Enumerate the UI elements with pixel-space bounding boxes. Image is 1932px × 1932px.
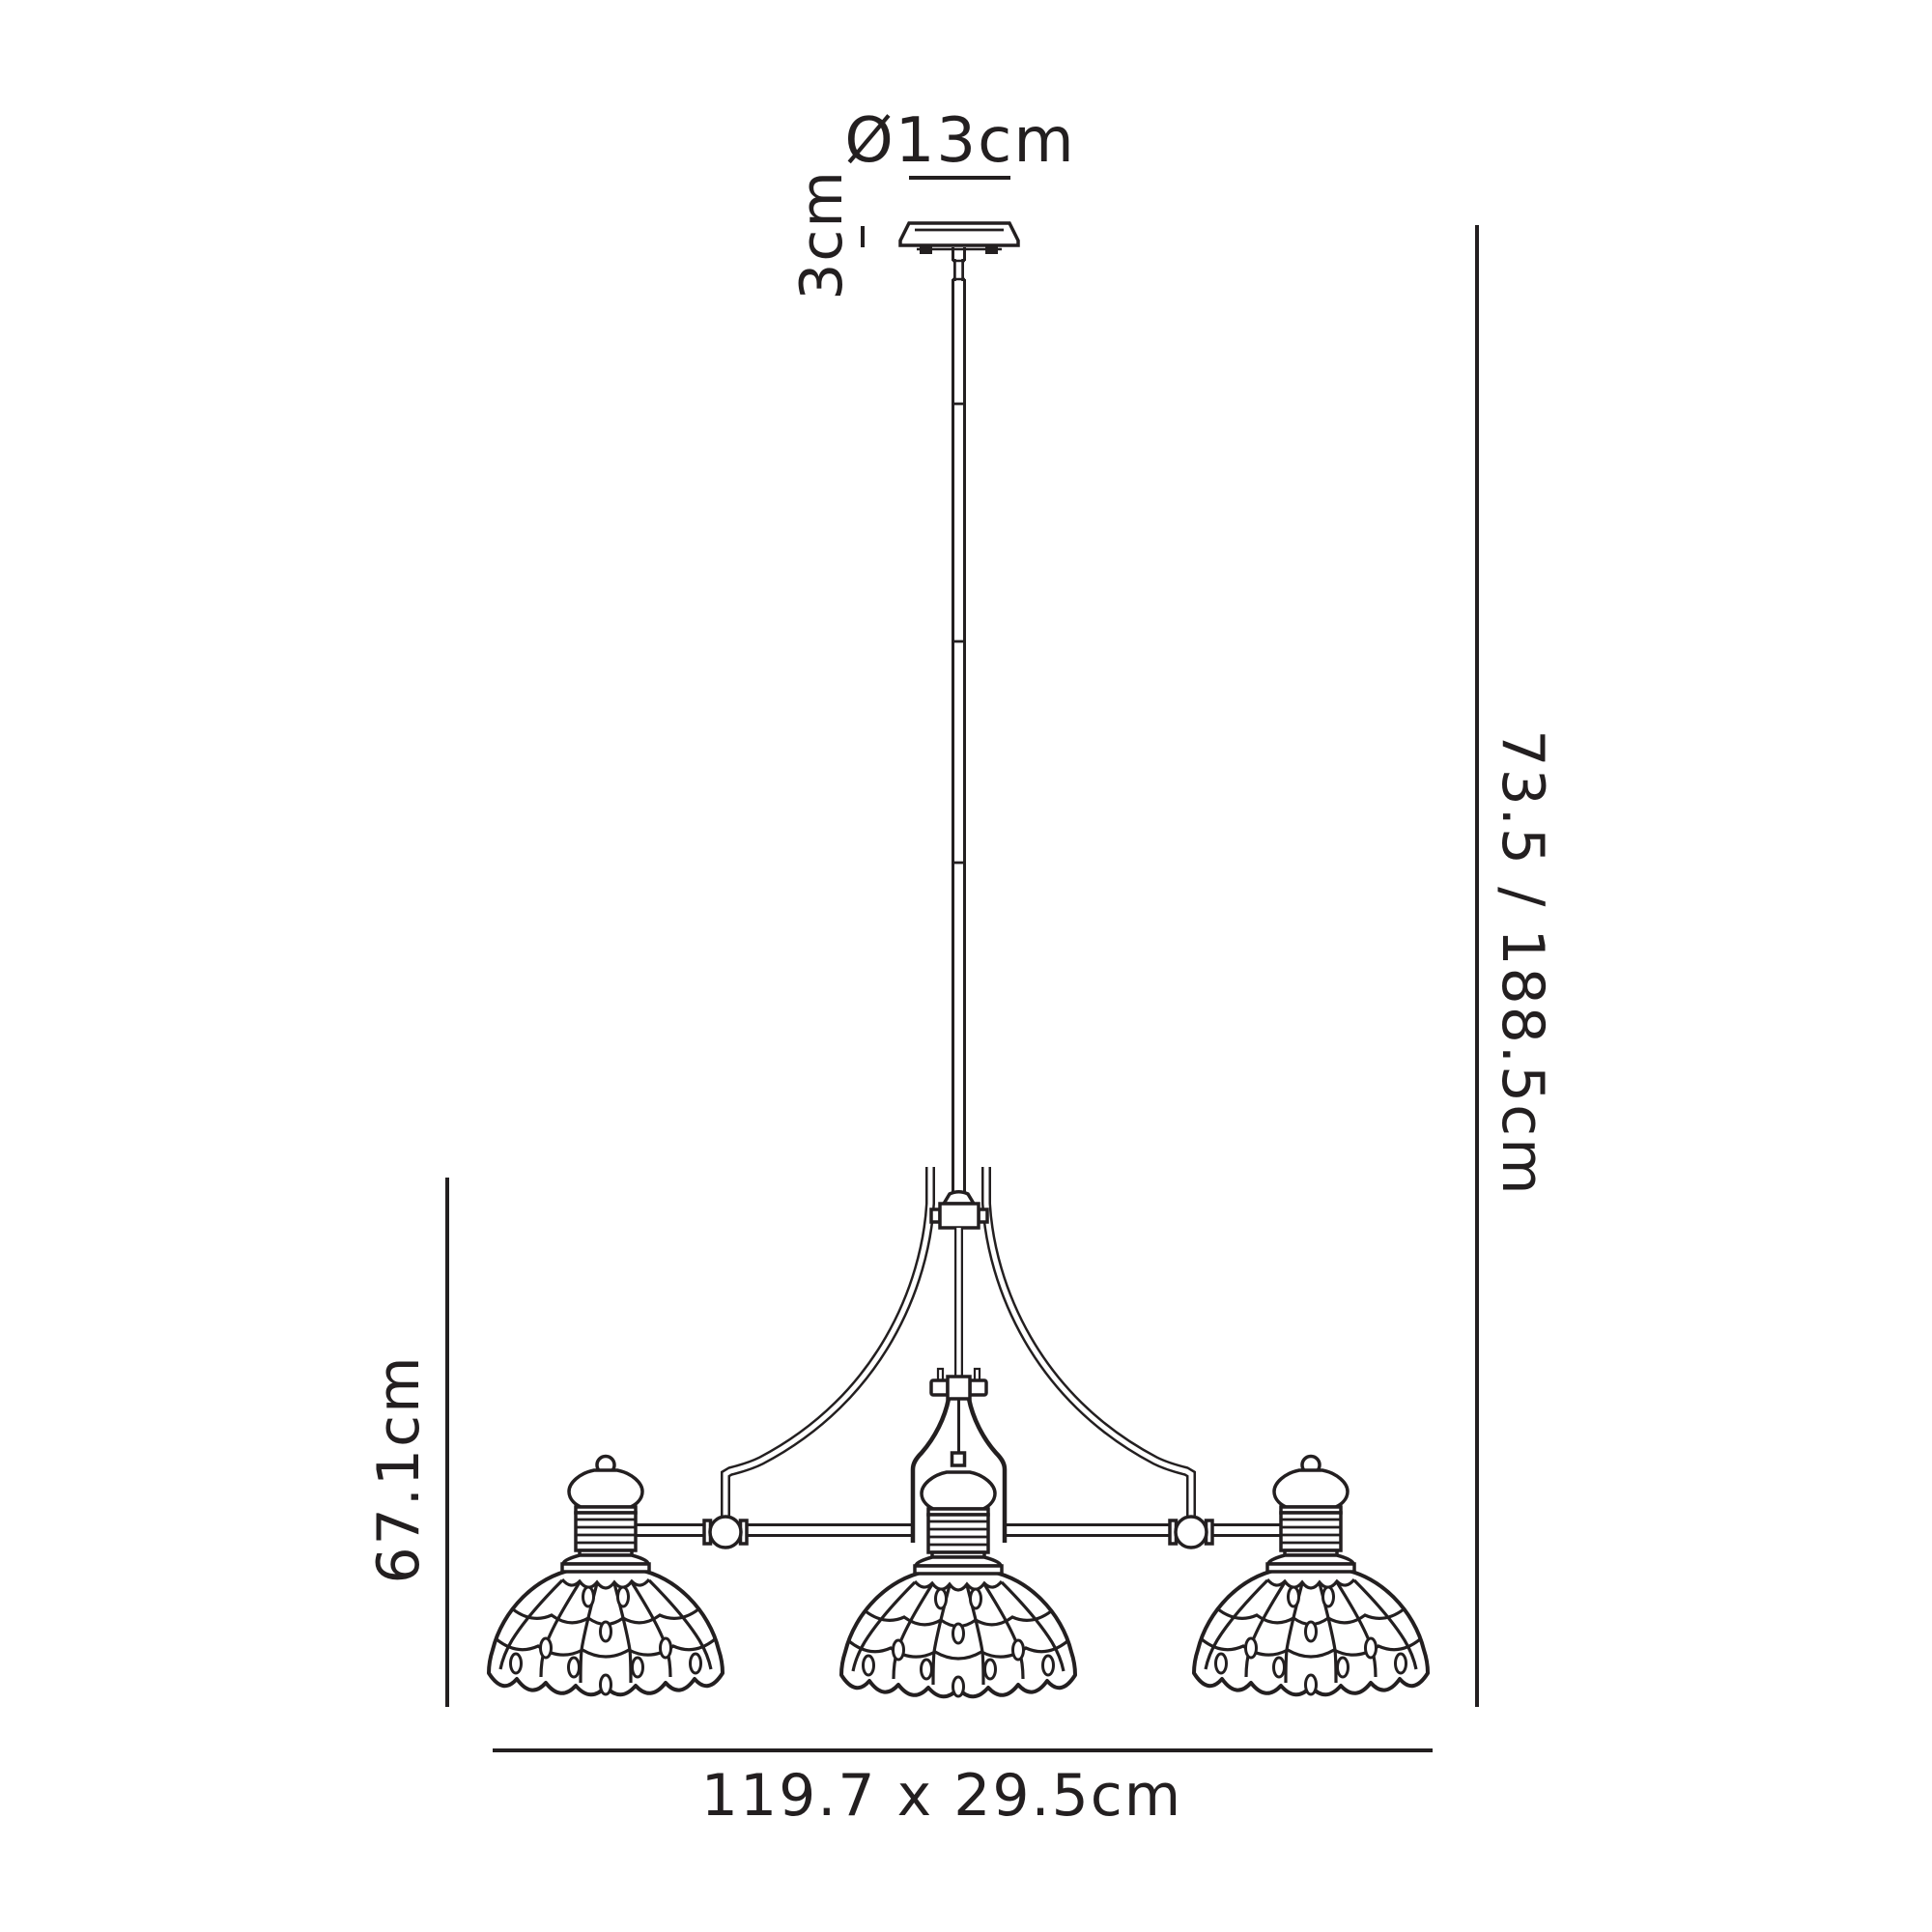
footprint-label: 119.7 x 29.5cm xyxy=(701,1767,1182,1825)
hub-block xyxy=(940,1204,979,1228)
right-support-arm xyxy=(986,1167,1191,1519)
central-hub xyxy=(931,1192,987,1228)
center-lamp xyxy=(915,1453,1002,1574)
connector-pin-right xyxy=(975,1369,980,1380)
right-lamp xyxy=(1267,1457,1354,1573)
chandelier-line-drawing xyxy=(0,0,1932,1932)
center-stem xyxy=(931,1228,986,1455)
chandelier-dimension-diagram: Ø13cm 3cm 73.5 / 188.5cm 67.1cm 119.7 x … xyxy=(0,0,1932,1932)
body-height-label: 67.1cm xyxy=(370,1354,428,1583)
suspension-height-label: 73.5 / 188.5cm xyxy=(1493,729,1551,1196)
connector-pin-left xyxy=(938,1369,943,1380)
canopy-height-label: 3cm xyxy=(793,169,851,300)
canopy-foot-right xyxy=(985,245,998,254)
ceiling-canopy xyxy=(900,223,1018,254)
connector-block xyxy=(948,1377,970,1399)
suspension-rod xyxy=(951,247,968,1192)
left-support-arm xyxy=(725,1167,930,1519)
connector-wing-right xyxy=(970,1380,986,1395)
left-lamp xyxy=(562,1457,649,1573)
wire-block xyxy=(952,1453,965,1465)
hub-cone xyxy=(944,1192,974,1204)
canopy-foot-left xyxy=(920,245,932,254)
canopy-diameter-label: Ø13cm xyxy=(844,110,1075,172)
connector-wing-left xyxy=(931,1380,948,1395)
